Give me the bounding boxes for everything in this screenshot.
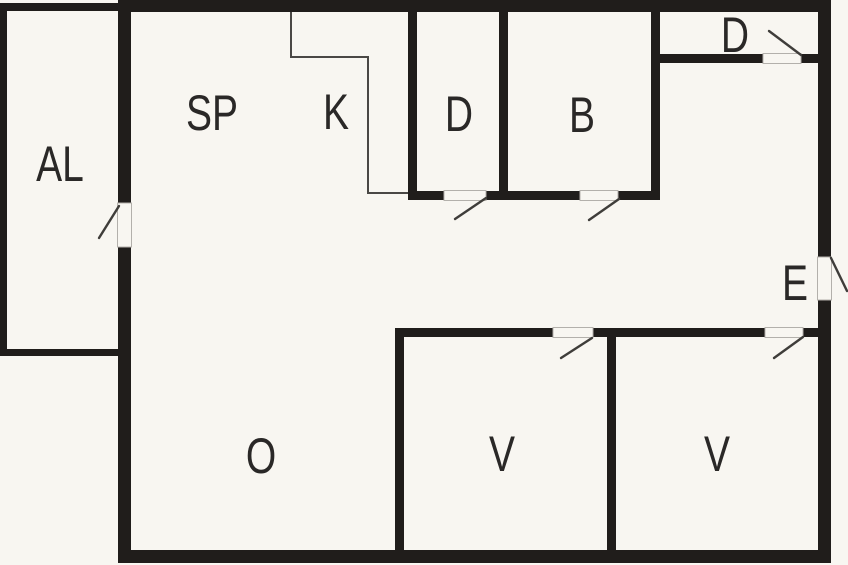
room-label-al: AL <box>36 139 84 189</box>
vmid-door-swing <box>561 338 592 358</box>
wall-main-left <box>118 0 131 563</box>
wall-v-divider <box>607 328 616 550</box>
entry-door-swing <box>831 258 847 291</box>
droom-door-swing <box>455 198 486 219</box>
wall-broom-right <box>651 12 660 200</box>
closet-door-swing <box>769 31 801 55</box>
wall-main-bottom <box>118 550 831 563</box>
kitchen-counter-line <box>291 12 408 193</box>
wall-v-top-middle <box>593 328 765 337</box>
vmid-door-opening <box>553 328 593 338</box>
closet-door-opening <box>763 54 801 64</box>
room-label-v-right: V <box>704 429 730 479</box>
room-label-v-mid: V <box>489 429 515 479</box>
floorplan-canvas: AL SP K D B D E O V V <box>0 0 848 565</box>
al-door-swing <box>99 206 119 238</box>
vright-door-opening <box>765 328 803 338</box>
wall-droom-broom-bottom <box>486 191 580 200</box>
wall-closet-stub <box>801 54 818 63</box>
room-label-d-room: D <box>445 89 473 139</box>
vright-door-swing <box>774 337 803 358</box>
wall-vright-top-stub <box>803 328 818 337</box>
wall-al-left <box>0 3 7 356</box>
al-door-opening <box>118 203 132 247</box>
droom-door-opening <box>444 191 486 201</box>
broom-door-swing <box>589 199 619 220</box>
wall-droom-left <box>408 12 417 200</box>
room-label-d-closet: D <box>721 10 749 60</box>
wall-al-bottom <box>0 349 118 356</box>
room-label-sp: SP <box>186 88 238 138</box>
wall-droom-broom-divider <box>499 12 508 200</box>
room-label-entry: E <box>782 258 808 308</box>
room-label-b-room: B <box>569 90 595 140</box>
broom-door-opening <box>580 191 618 201</box>
wall-al-top <box>0 3 118 11</box>
room-label-k: K <box>323 87 349 137</box>
wall-vmid-top-left <box>395 328 553 337</box>
wall-droom-bottom-left <box>408 191 444 200</box>
wall-broom-bottom-right <box>618 191 660 200</box>
entry-door-opening <box>818 257 832 300</box>
room-label-o-room: O <box>246 431 276 481</box>
wall-vmid-left <box>395 328 404 550</box>
